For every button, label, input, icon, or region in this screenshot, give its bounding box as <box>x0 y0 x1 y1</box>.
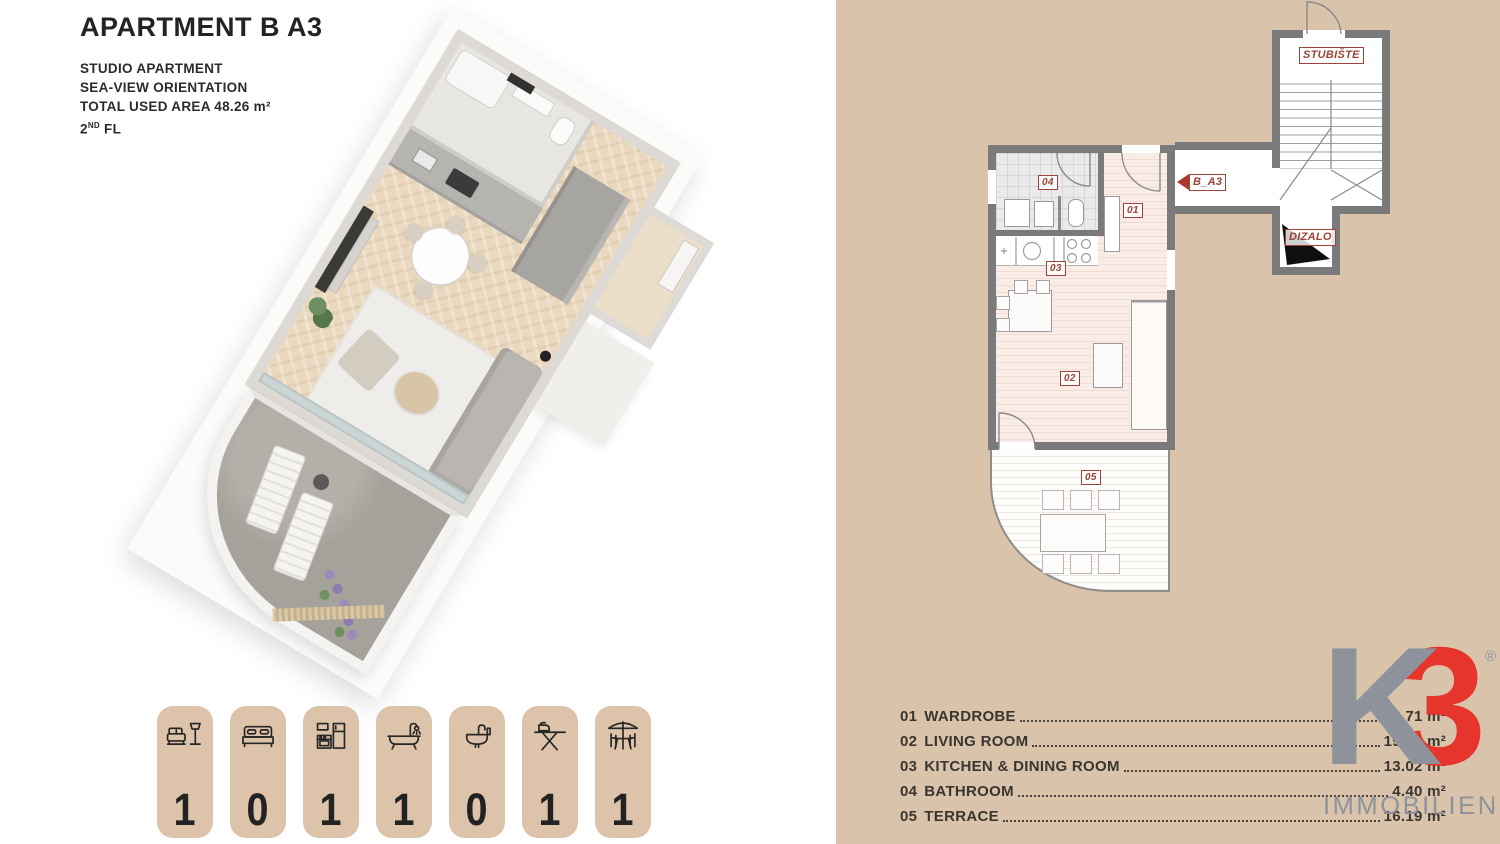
plan-wall <box>1272 30 1280 168</box>
room-marker-terrace: 05 <box>1081 470 1101 485</box>
legend-name: WARDROBE <box>924 708 1016 725</box>
legend-num: 04 <box>900 783 917 800</box>
plan-wall <box>1175 206 1272 214</box>
plan-terrace-chair <box>1098 554 1120 574</box>
room-marker-living: 02 <box>1060 371 1080 386</box>
amenity-kitchen: 1 <box>303 706 359 838</box>
legend-num: 05 <box>900 808 917 825</box>
amenity-count: 1 <box>612 787 634 832</box>
k3-immobilien-logo: 3 K ® IMMOBILIEN <box>1323 652 1499 838</box>
render-toilet <box>547 114 579 148</box>
logo-letter: K <box>1321 622 1442 790</box>
amenity-terrace: 1 <box>595 706 651 838</box>
plan-chair <box>996 318 1010 332</box>
amenity-count: 1 <box>320 787 342 832</box>
amenity-count: 1 <box>539 787 561 832</box>
render-plant <box>299 291 340 332</box>
floor-suffix: FL <box>100 122 121 137</box>
logo-word: IMMOBILIEN <box>1323 792 1499 821</box>
amenity-washbasin: 0 <box>449 706 505 838</box>
plan-terrace-chair <box>1042 554 1064 574</box>
plan-wall <box>1272 206 1280 275</box>
kitchen-icon <box>312 718 350 756</box>
washbasin-icon <box>458 718 496 756</box>
plan-terrace-chair <box>1070 490 1092 510</box>
plan-sink <box>1034 201 1054 227</box>
render-bathtub <box>443 48 512 110</box>
render-3d-floorplan <box>135 18 695 683</box>
render-kitchen-sink <box>412 148 439 172</box>
plan-chair <box>1014 280 1028 294</box>
left-panel: APARTMENT B A3 STUDIO APARTMENT SEA-VIEW… <box>0 0 836 844</box>
plan-stair-door-opening <box>1303 30 1345 38</box>
plan-terrace-chair <box>1042 490 1064 510</box>
plan-chair <box>1036 280 1050 294</box>
plan-wall <box>1272 267 1340 275</box>
plan-window <box>988 170 996 204</box>
plan-partition <box>1058 196 1061 230</box>
plan-chair <box>996 296 1010 310</box>
legend-name: TERRACE <box>924 808 999 825</box>
amenity-count: 0 <box>466 787 488 832</box>
plan-washer <box>1004 199 1030 227</box>
amenity-ironing: 1 <box>522 706 578 838</box>
render-floor-lamp <box>538 349 553 364</box>
room-marker-kitchen: 03 <box>1046 261 1066 276</box>
amenity-pill-row: 1 0 1 1 0 1 1 <box>157 706 651 838</box>
legend-name: KITCHEN & DINING ROOM <box>924 758 1119 775</box>
unit-entrance-arrow-icon <box>1177 174 1189 190</box>
plan-toilet <box>1068 199 1084 227</box>
render-annex-shelf <box>657 239 699 293</box>
plan-terrace-table <box>1040 514 1106 552</box>
patio-icon <box>604 718 642 756</box>
ironing-board-icon <box>531 718 569 756</box>
plan-hall-closet <box>1104 196 1120 252</box>
right-panel: 04 01 03 02 05 STUBIŠTE DIZALO B_A3 01WA… <box>836 0 1500 844</box>
render-building <box>149 29 681 677</box>
legend-name: LIVING ROOM <box>924 733 1028 750</box>
bathtub-icon <box>385 718 423 756</box>
plan-wall <box>1382 30 1390 214</box>
plan-dining-table <box>1008 290 1052 332</box>
sofa-lamp-icon <box>166 718 204 756</box>
amenity-bathtub: 1 <box>376 706 432 838</box>
plan-coffee-table <box>1093 343 1123 388</box>
plan-sofa <box>1131 300 1167 430</box>
legend-num: 03 <box>900 758 917 775</box>
floor-ordinal: ND <box>88 121 100 130</box>
plan-terrace-opening <box>999 442 1035 450</box>
plan-terrace-chair <box>1070 554 1092 574</box>
plan-wall <box>1175 142 1272 150</box>
legend-name: BATHROOM <box>924 783 1014 800</box>
plan-window <box>1167 250 1175 290</box>
render-cooktop <box>445 168 480 199</box>
plan-terrace <box>990 450 1170 592</box>
amenity-bedroom: 0 <box>230 706 286 838</box>
room-marker-wardrobe: 01 <box>1123 203 1143 218</box>
amenity-count: 1 <box>393 787 415 832</box>
plan-wall <box>1340 206 1390 214</box>
plan-terrace-chair <box>1098 490 1120 510</box>
legend-num: 02 <box>900 733 917 750</box>
elevator-label: DIZALO <box>1285 229 1336 246</box>
render-lavender-plants <box>323 568 337 582</box>
render-deck-strip <box>272 605 384 622</box>
plan-entry-opening <box>1122 145 1160 153</box>
amenity-count: 1 <box>174 787 196 832</box>
staircase-label: STUBIŠTE <box>1299 47 1364 64</box>
render-side-table <box>310 471 332 493</box>
plan-stair-treads <box>1280 76 1382 169</box>
registered-mark-icon: ® <box>1485 648 1496 665</box>
legend-num: 01 <box>900 708 917 725</box>
room-marker-bathroom: 04 <box>1038 175 1058 190</box>
bed-icon <box>239 718 277 756</box>
amenity-living-room: 1 <box>157 706 213 838</box>
floor-number: 2 <box>80 122 88 137</box>
unit-label: B_A3 <box>1189 174 1226 191</box>
amenity-count: 0 <box>247 787 269 832</box>
plan-bathroom <box>996 153 1098 230</box>
